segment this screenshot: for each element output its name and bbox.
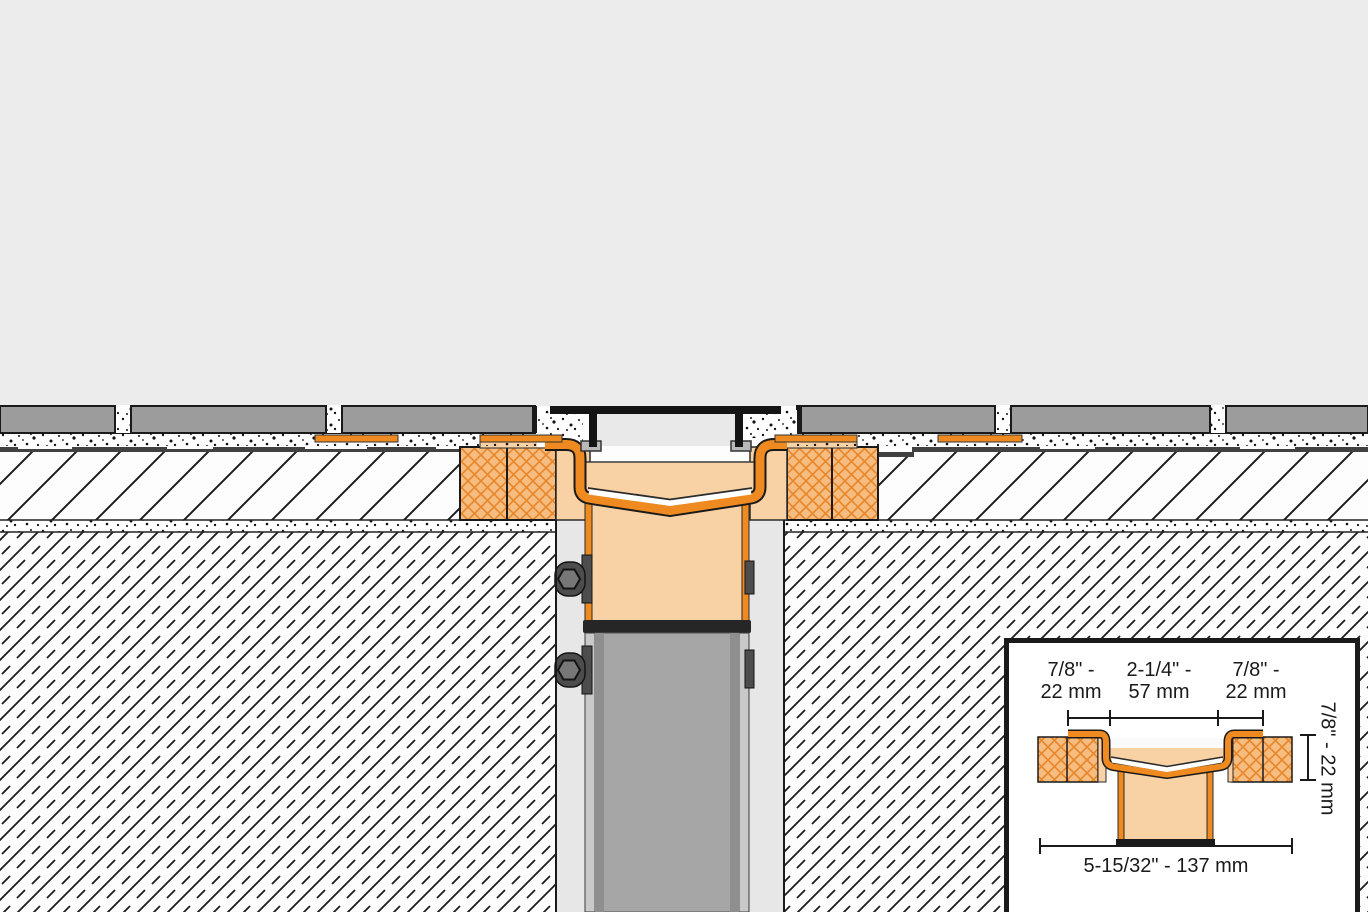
dim-top-left-line2: 22 mm bbox=[1040, 681, 1101, 703]
page: 7/8" - 22 mm 2-1/4" - 57 mm 7/8" - 22 mm… bbox=[0, 0, 1368, 912]
dim-label-top-right: 7/8" - 22 mm bbox=[1211, 659, 1301, 703]
dim-top-right-line1: 7/8" - bbox=[1232, 659, 1279, 681]
mini-profile bbox=[1038, 734, 1292, 845]
right-dimension-line bbox=[1300, 735, 1316, 780]
dim-label-top-center: 2-1/4" - 57 mm bbox=[1109, 659, 1209, 703]
dim-label-top-left: 7/8" - 22 mm bbox=[1026, 659, 1116, 703]
support-board-right bbox=[787, 447, 878, 520]
dim-top-center-line1: 2-1/4" - bbox=[1127, 659, 1192, 681]
coupling-seal bbox=[583, 620, 751, 633]
dim-top-left-line1: 7/8" - bbox=[1047, 659, 1094, 681]
dimension-detail-inset: 7/8" - 22 mm 2-1/4" - 57 mm 7/8" - 22 mm… bbox=[1004, 638, 1360, 912]
top-dimension-line bbox=[1068, 710, 1263, 726]
support-board-left bbox=[460, 447, 556, 520]
hex-bolt-icon bbox=[558, 661, 580, 680]
hex-bolt-icon bbox=[558, 570, 580, 589]
channel-opening bbox=[597, 414, 735, 446]
outlet-pipe bbox=[595, 633, 739, 912]
drain-channel-body bbox=[585, 462, 755, 621]
drain-outlet bbox=[583, 620, 751, 912]
dim-top-right-line2: 22 mm bbox=[1225, 681, 1286, 703]
dim-label-right-vertical: 7/8" - 22 mm bbox=[1316, 691, 1339, 827]
dim-top-center-line2: 57 mm bbox=[1128, 681, 1189, 703]
dim-label-bottom: 5-15/32" - 137 mm bbox=[1056, 855, 1276, 877]
